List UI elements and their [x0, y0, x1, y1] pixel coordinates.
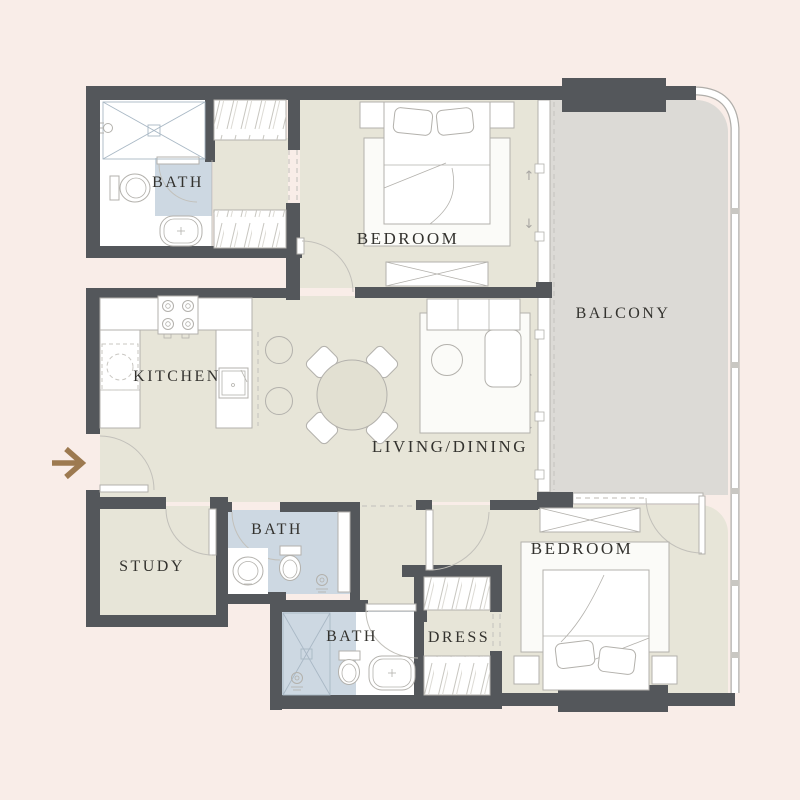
bath-bottom-door-leaf — [366, 604, 416, 611]
nightstand — [489, 102, 514, 128]
label-living-dining: LIVING/DINING — [372, 437, 528, 456]
entry-door-leaf — [100, 485, 148, 492]
label-study: STUDY — [119, 558, 185, 575]
balcony-door-leaf — [699, 496, 705, 554]
nightstand — [652, 656, 677, 684]
dresser-icon — [386, 262, 488, 286]
stove-icon — [158, 296, 198, 338]
bedroom-top-door-leaf — [297, 238, 304, 254]
entry-arrow-icon — [52, 449, 82, 477]
label-bedroom-bottom: BEDROOM — [531, 539, 634, 558]
label-kitchen: KITCHEN — [133, 368, 221, 385]
toilet-icon — [339, 651, 361, 685]
dresser-icon — [540, 508, 640, 532]
floor-plan: ↑ ↓ ↑ ↓ — [0, 0, 800, 800]
floor-plan-canvas: ↑ ↓ ↑ ↓ — [0, 0, 800, 800]
bathtub-icon — [160, 216, 202, 246]
bath-top-door-leaf — [157, 157, 199, 164]
balcony-floor — [548, 100, 728, 495]
dining-set-icon — [304, 344, 399, 445]
bed-icon — [543, 570, 649, 690]
bedroom-bottom-door-leaf — [426, 510, 433, 570]
bathtub-icon — [369, 656, 415, 690]
label-balcony: BALCONY — [576, 305, 671, 322]
bedroom-balcony-glass — [573, 493, 703, 504]
kitchen-island — [216, 330, 258, 428]
closet-passage-floor — [213, 138, 288, 213]
label-bedroom-top: BEDROOM — [357, 229, 460, 248]
label-bath-middle: BATH — [251, 521, 303, 538]
slide-up-icon: ↑ — [524, 169, 535, 184]
label-bath-bottom: BATH — [326, 628, 378, 645]
bed-icon — [384, 102, 490, 224]
label-dress: DRESS — [428, 629, 490, 646]
toilet-icon — [110, 174, 150, 202]
sink-icon — [233, 557, 263, 585]
nightstand — [514, 656, 539, 684]
corridor-floor — [356, 502, 420, 606]
label-bath-top: BATH — [152, 174, 204, 191]
nightstand — [360, 102, 385, 128]
slide-down-icon: ↓ — [524, 217, 535, 232]
toilet-icon — [280, 546, 302, 581]
study-door-leaf — [209, 509, 216, 555]
